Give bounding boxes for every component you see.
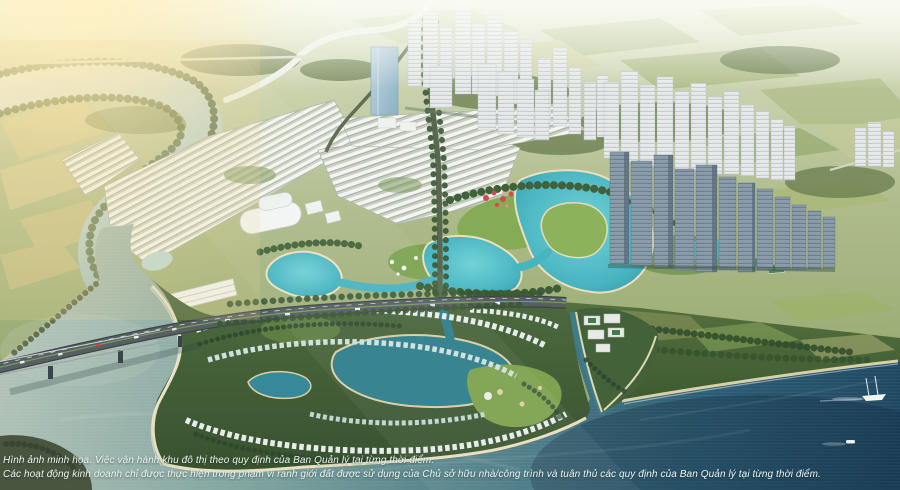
motorboat [846,440,855,444]
motorboat-wake [822,442,846,446]
aerial-masterplan-render: Hình ảnh minh họa. Việc vận hành khu đô … [0,0,900,490]
scene-canvas [0,0,900,490]
disclaimer-line1: Hình ảnh minh họa. Việc vận hành khu đô … [3,454,897,467]
disclaimer-line2: Các hoạt động kinh doanh chỉ được thực h… [3,468,897,481]
